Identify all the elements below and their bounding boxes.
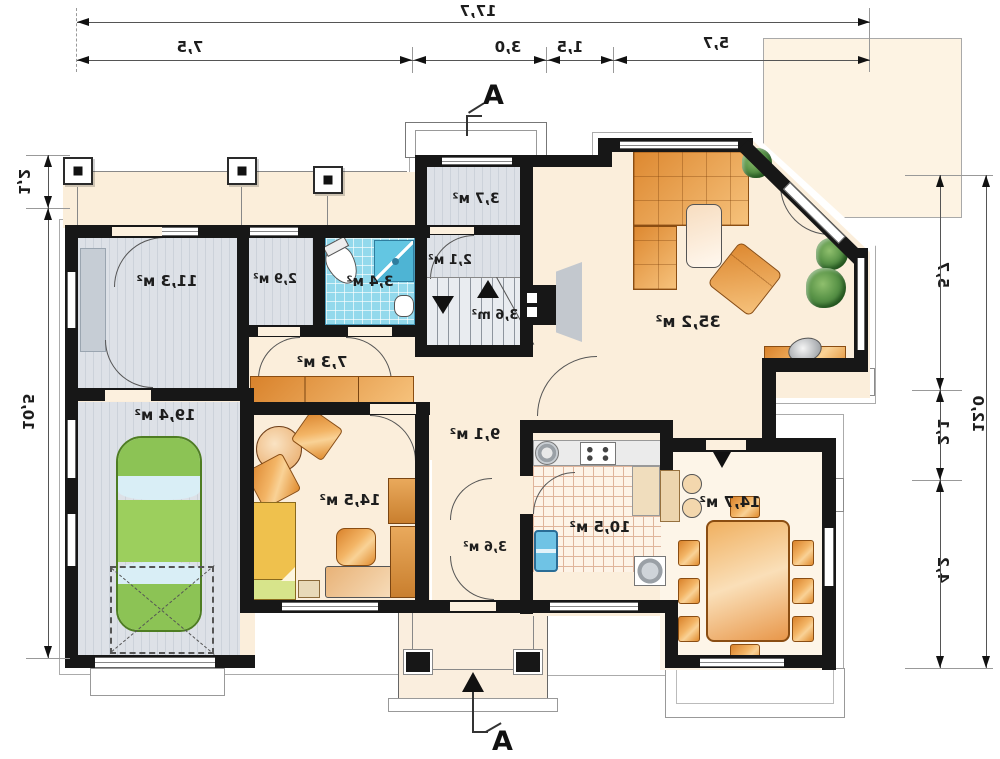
bed xyxy=(248,502,296,600)
wall xyxy=(415,402,429,613)
dim-label: 17,7 xyxy=(448,2,508,20)
garage-door-swing xyxy=(110,566,214,654)
coffee-table xyxy=(686,204,722,268)
dining-chair xyxy=(678,540,700,566)
room-area-label: 10,5 м² xyxy=(560,518,640,536)
wall xyxy=(240,390,254,613)
desk xyxy=(325,566,395,598)
garage-apron xyxy=(90,668,225,696)
post-core xyxy=(74,167,83,176)
room-area-label: 3,6 m² xyxy=(463,308,527,323)
room-area-label: 3,6 м² xyxy=(453,540,517,555)
nightstand xyxy=(298,580,320,598)
door-opening xyxy=(430,227,474,234)
window xyxy=(620,141,738,149)
room-area-label: 35,2 м² xyxy=(643,312,733,331)
dim-arrow xyxy=(44,155,52,167)
room-area-label: 19,4 м² xyxy=(125,406,205,424)
wall xyxy=(520,514,533,614)
dim-label: 5,7 xyxy=(686,34,746,52)
dimension-line xyxy=(77,60,870,61)
dimension-line xyxy=(77,22,870,23)
dim-tick xyxy=(905,175,993,176)
door-opening xyxy=(450,602,496,611)
porch-pillar xyxy=(404,650,432,674)
window xyxy=(700,658,784,667)
section-line xyxy=(468,102,484,113)
room-area-label: 9,1 м² xyxy=(440,425,510,443)
sink xyxy=(394,295,414,317)
dim-arrow xyxy=(615,56,627,64)
wall xyxy=(665,600,678,668)
dim-arrow xyxy=(77,56,89,64)
cabinet xyxy=(390,526,418,598)
post-core xyxy=(238,167,247,176)
dimension-line xyxy=(940,175,941,668)
dim-arrow xyxy=(936,480,944,492)
post-core xyxy=(324,176,333,185)
dim-arrow xyxy=(400,56,412,64)
dim-label: 7,5 xyxy=(160,38,220,56)
bar-counter xyxy=(660,470,680,522)
section-line xyxy=(466,115,482,117)
stairs-down-arrow xyxy=(432,296,454,314)
dim-arrow xyxy=(936,378,944,390)
canopy-post xyxy=(63,157,93,185)
dim-arrow xyxy=(936,656,944,668)
canopy-line xyxy=(241,187,242,227)
dim-label: 5,7 xyxy=(923,253,963,297)
bar-stool xyxy=(682,474,702,494)
window xyxy=(442,157,512,165)
chimney-flue xyxy=(527,293,537,303)
section-line xyxy=(466,116,468,136)
dining-table xyxy=(706,520,790,642)
dim-arrow xyxy=(982,656,990,668)
dim-arrow xyxy=(601,56,613,64)
dim-arrow xyxy=(936,175,944,187)
dimension-line xyxy=(986,175,987,668)
entry-arrow xyxy=(462,672,484,692)
door-opening xyxy=(370,404,416,414)
dim-arrow xyxy=(982,175,990,187)
dim-arrow xyxy=(44,646,52,658)
canopy-post xyxy=(227,157,257,185)
dim-label: 10,5 xyxy=(8,390,48,434)
dimension-line xyxy=(48,155,49,658)
room-area-label: 3,4 м² xyxy=(335,274,405,290)
window xyxy=(250,227,298,236)
canopy-line xyxy=(327,196,328,228)
window xyxy=(824,528,834,586)
kitchen-sink xyxy=(534,530,558,572)
shower-drain xyxy=(392,258,399,265)
storage-wardrobe xyxy=(80,248,106,352)
dim-tick xyxy=(26,658,70,659)
porch-pillar xyxy=(514,650,542,674)
door-opening xyxy=(706,440,746,450)
rear-terrace-step xyxy=(676,668,834,704)
dining-chair xyxy=(678,578,700,604)
floor-plan: 11,3 м² 2,9 м² 3,4 м² 3,7 м² 2,1 м² 3,6 … xyxy=(0,0,1000,759)
dining-chair xyxy=(678,616,700,642)
cabinet xyxy=(388,478,418,524)
swing-diagonal xyxy=(111,565,214,652)
wall xyxy=(427,345,533,357)
kitchen-counter xyxy=(632,466,660,516)
dim-arrow xyxy=(77,18,89,26)
corner-sofa xyxy=(633,226,677,290)
car-windshield xyxy=(118,476,200,500)
door-opening xyxy=(105,390,151,401)
door-opening xyxy=(112,227,162,236)
window xyxy=(67,272,76,328)
stairs-edge xyxy=(427,277,533,278)
fireplace xyxy=(556,262,582,342)
dim-arrow xyxy=(44,196,52,208)
stove xyxy=(580,442,616,465)
washer xyxy=(535,441,559,465)
dining-chair xyxy=(792,616,814,642)
garage-door xyxy=(95,657,215,668)
dim-label: 1,5 xyxy=(540,38,600,56)
dim-arrow xyxy=(548,56,560,64)
dim-arrow xyxy=(858,18,870,26)
room-area-label: 7,3 м² xyxy=(287,353,357,371)
dim-tick xyxy=(905,668,993,669)
wall xyxy=(313,237,325,332)
dining-chair xyxy=(792,540,814,566)
section-line xyxy=(472,692,474,732)
dim-label: 3,0 xyxy=(478,38,538,56)
wall xyxy=(237,237,249,388)
chimney-flue xyxy=(527,307,537,317)
room-area-label: 2,1 м² xyxy=(415,253,485,268)
stairs-up-arrow xyxy=(477,280,499,298)
canopy-line xyxy=(77,187,78,227)
canopy-post xyxy=(313,166,343,194)
car-hood xyxy=(118,438,200,476)
fridge xyxy=(634,556,666,586)
desk-chair xyxy=(336,528,376,566)
room-area-label: 2,9 м² xyxy=(243,272,307,287)
window xyxy=(550,602,638,611)
dim-label: 1,2 xyxy=(4,160,44,204)
bed-foot xyxy=(249,579,295,599)
dining-chair xyxy=(792,578,814,604)
dim-arrow xyxy=(858,56,870,64)
wall xyxy=(520,325,533,357)
car-roof xyxy=(118,500,200,562)
dim-arrow xyxy=(414,56,426,64)
window xyxy=(67,514,76,566)
door-opening xyxy=(258,327,300,336)
entry-arrow xyxy=(713,452,731,468)
wardrobe xyxy=(250,376,414,404)
top-porch-step xyxy=(415,130,537,158)
door-opening xyxy=(348,327,392,336)
wall xyxy=(520,420,672,433)
bed-fold xyxy=(281,567,295,581)
window xyxy=(857,258,865,350)
section-marker-label: A xyxy=(483,80,504,111)
room-area-label: 14,5 м² xyxy=(310,491,390,509)
window xyxy=(67,420,76,478)
room-area-label: 14,7 м² xyxy=(690,493,770,511)
wall xyxy=(520,160,533,287)
dim-arrow xyxy=(936,468,944,480)
window xyxy=(282,602,378,611)
swing-diagonal xyxy=(111,568,214,655)
section-marker-label: A xyxy=(492,726,513,757)
room-area-label: 11,3 м² xyxy=(127,272,207,290)
wall xyxy=(762,368,776,446)
dim-label: 4,2 xyxy=(923,548,963,592)
wall xyxy=(762,358,862,372)
dim-arrow xyxy=(44,208,52,220)
wall xyxy=(520,420,533,476)
room-area-label: 3,7 м² xyxy=(441,191,511,207)
dim-arrow xyxy=(936,390,944,402)
dim-label: 12,0 xyxy=(956,392,1000,436)
dim-arrow xyxy=(534,56,546,64)
